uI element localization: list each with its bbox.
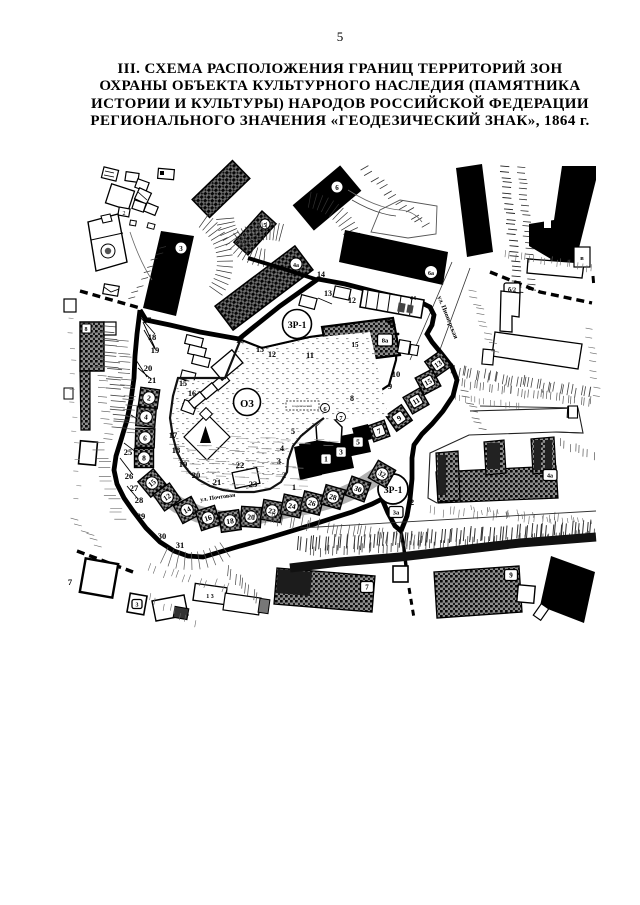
svg-text:ул. Пионерская: ул. Пионерская [436, 295, 460, 340]
svg-text:29: 29 [137, 511, 146, 521]
svg-text:2: 2 [123, 211, 126, 217]
svg-text:17: 17 [143, 315, 152, 325]
svg-text:18: 18 [226, 516, 235, 526]
svg-text:3: 3 [179, 245, 183, 253]
svg-text:5: 5 [291, 427, 295, 436]
svg-text:в: в [580, 255, 584, 262]
svg-text:1: 1 [324, 455, 328, 464]
svg-text:19: 19 [151, 345, 160, 355]
svg-text:геодезический: геодезический [292, 404, 312, 408]
svg-text:21: 21 [148, 375, 157, 385]
svg-text:4а: 4а [293, 263, 299, 269]
svg-text:6а: 6а [428, 271, 434, 277]
svg-text:18: 18 [148, 332, 157, 342]
svg-text:1: 1 [400, 522, 404, 532]
svg-text:ул. Почтовая: ул. Почтовая [200, 492, 237, 503]
svg-text:3: 3 [277, 457, 281, 466]
svg-text:6: 6 [143, 434, 147, 443]
svg-text:8а: 8а [382, 338, 389, 345]
svg-text:30: 30 [158, 531, 167, 541]
svg-text:20: 20 [247, 512, 255, 522]
svg-text:9: 9 [509, 572, 513, 580]
svg-text:31: 31 [176, 540, 185, 550]
svg-text:7: 7 [68, 577, 73, 587]
svg-text:ОЗ: ОЗ [240, 399, 254, 410]
svg-text:20: 20 [144, 363, 153, 373]
svg-text:10: 10 [392, 369, 401, 379]
svg-text:22: 22 [236, 460, 245, 470]
svg-text:1: 1 [292, 483, 296, 492]
svg-text:ЗР-1: ЗР-1 [288, 321, 307, 331]
svg-text:13: 13 [256, 345, 264, 354]
svg-text:13: 13 [324, 289, 332, 298]
svg-text:14: 14 [317, 270, 325, 279]
svg-text:3а: 3а [393, 510, 400, 517]
svg-text:8: 8 [85, 327, 88, 333]
svg-text:5: 5 [356, 438, 360, 447]
svg-text:8: 8 [142, 454, 146, 463]
svg-text:6: 6 [335, 184, 339, 192]
svg-text:2: 2 [410, 497, 414, 507]
svg-text:4: 4 [280, 444, 284, 453]
svg-text:12: 12 [348, 296, 356, 305]
svg-text:4а: 4а [547, 474, 553, 480]
svg-text:3: 3 [136, 603, 139, 609]
svg-text:26: 26 [125, 471, 134, 481]
svg-text:15: 15 [352, 341, 360, 349]
svg-text:9: 9 [388, 381, 392, 391]
svg-text:15: 15 [179, 379, 187, 388]
svg-text:44: 44 [410, 296, 416, 302]
svg-text:12: 12 [268, 350, 276, 359]
svg-text:27: 27 [130, 483, 139, 493]
svg-text:1 3: 1 3 [206, 594, 214, 600]
svg-text:9: 9 [390, 320, 394, 330]
svg-text:11: 11 [306, 350, 314, 360]
svg-text:28: 28 [135, 495, 144, 505]
svg-text:21: 21 [213, 477, 222, 487]
svg-text:7: 7 [365, 584, 369, 592]
svg-text:16: 16 [188, 389, 196, 398]
svg-text:8: 8 [350, 394, 354, 403]
svg-text:23: 23 [249, 479, 258, 489]
svg-text:25: 25 [124, 447, 133, 457]
svg-text:3: 3 [339, 448, 343, 457]
